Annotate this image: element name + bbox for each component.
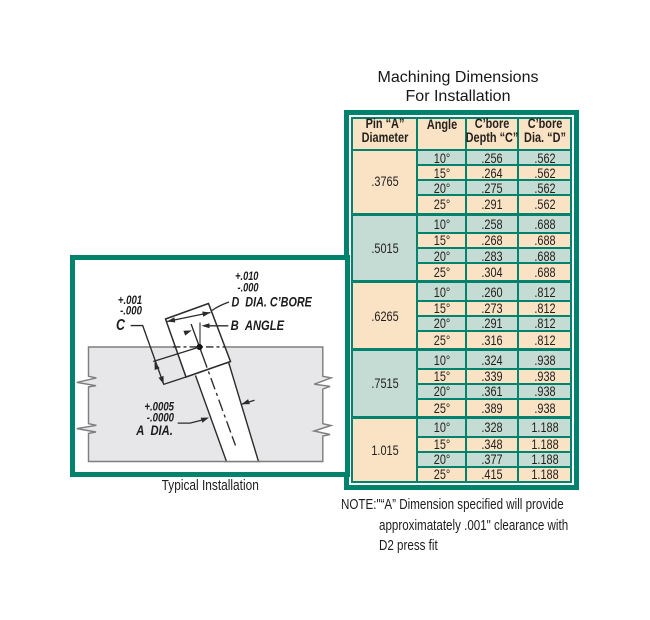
- svg-text:B ANGLE: B ANGLE: [231, 318, 285, 333]
- svg-text:A DIA.: A DIA.: [135, 423, 173, 438]
- svg-text:D DIA. C’BORE: D DIA. C’BORE: [232, 294, 313, 309]
- svg-text:C: C: [116, 316, 126, 334]
- svg-text:-.000: -.000: [238, 283, 259, 295]
- svg-text:+.010: +.010: [235, 271, 258, 283]
